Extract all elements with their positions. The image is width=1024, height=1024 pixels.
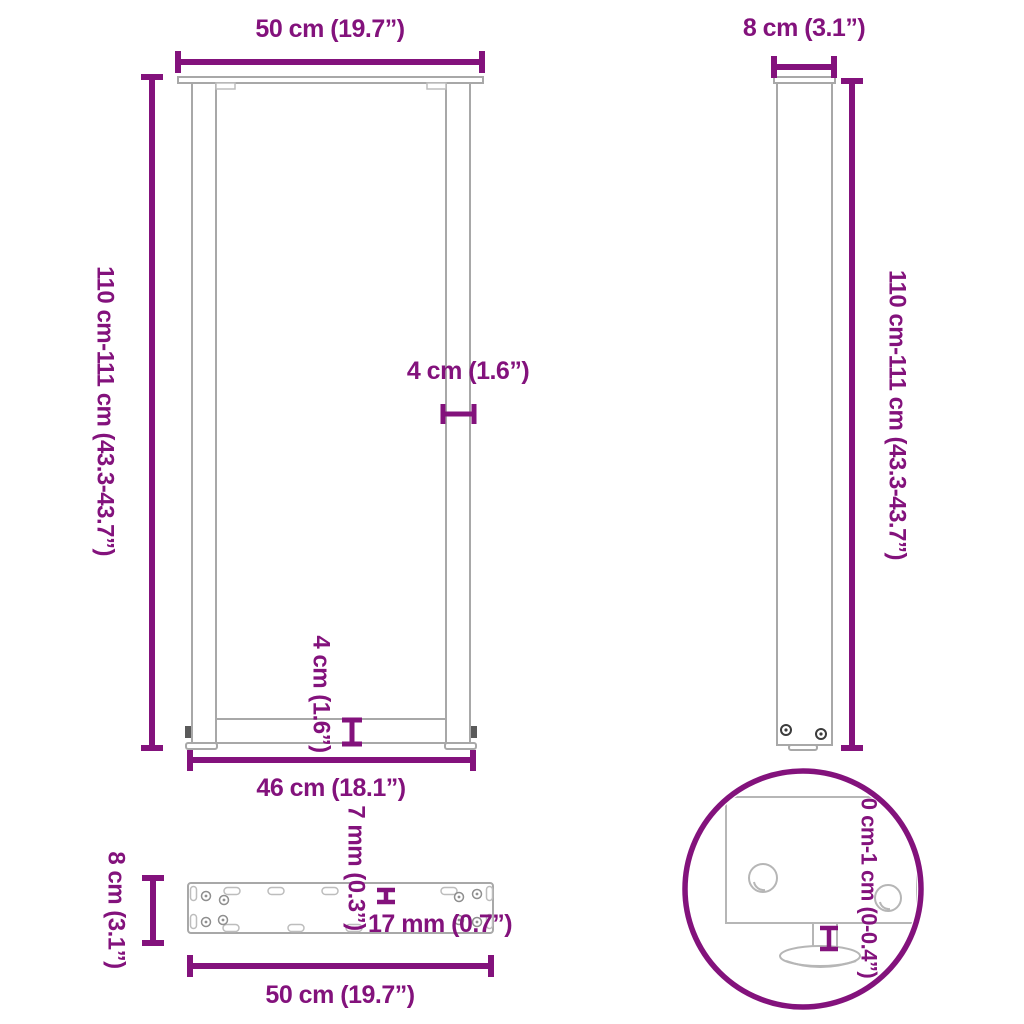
front-bar-width-label: 4 cm (1.6”) [407, 357, 530, 385]
screw-dot-icon [784, 728, 787, 731]
front-width-dimension-line [175, 51, 485, 73]
slot-icon [268, 888, 284, 895]
side-foot [789, 745, 817, 750]
screw-hole-icon [749, 864, 777, 892]
plate-thickness-label: 7 mm (0.3”) [343, 805, 370, 930]
slot-icon [441, 888, 457, 895]
front-height-dimension-line [141, 76, 163, 749]
front-left-bracket [216, 83, 235, 89]
front-left-bar [192, 83, 216, 743]
detail-view: 0 cm-1 cm (0-0.4”) [685, 771, 921, 1007]
plate-depth-label: 8 cm (3.1”) [103, 851, 130, 968]
front-width-label: 50 cm (19.7”) [255, 15, 404, 43]
plate-view: 8 cm (3.1”) 50 cm (19.7”) 7 mm (0.3”) 17… [103, 805, 513, 1009]
hole-spacing-label: 17 mm (0.7”) [368, 910, 512, 938]
slot-icon [223, 925, 239, 932]
slot-icon [322, 888, 338, 895]
front-right-bracket [427, 83, 446, 89]
front-height-label: 110 cm-111 cm (43.3-43.7”) [92, 266, 119, 556]
side-width-dimension-line [772, 56, 836, 78]
plate-width-dimension-line [189, 955, 492, 977]
slot-icon [191, 887, 197, 901]
plate-depth-dimension-line [142, 877, 164, 944]
detail-contents [726, 797, 917, 967]
front-left-adjuster-icon [185, 726, 191, 738]
front-right-adjuster-icon [471, 726, 477, 738]
side-height-label: 110 cm-111 cm (43.3-43.7”) [884, 270, 911, 560]
slot-icon [487, 887, 493, 901]
front-bottom-width-dimension-line [189, 750, 474, 771]
front-crossbar-label: 4 cm (1.6”) [308, 635, 335, 752]
front-bottom-width-label: 46 cm (18.1”) [256, 774, 405, 802]
screw-dot-icon [819, 732, 822, 735]
slot-icon [224, 888, 240, 895]
front-left-foot [186, 743, 217, 749]
front-view: 50 cm (19.7”) 110 cm-111 cm (43.3-43.7”)… [92, 15, 530, 802]
diagram-svg: 50 cm (19.7”) 110 cm-111 cm (43.3-43.7”)… [0, 0, 1024, 1024]
front-top-plate [178, 77, 483, 83]
slot-icon [288, 925, 304, 932]
side-height-dimension-line [841, 80, 863, 749]
front-right-foot [445, 743, 476, 749]
plate-width-label: 50 cm (19.7”) [265, 981, 414, 1009]
side-column [777, 83, 832, 745]
side-width-label: 8 cm (3.1”) [743, 14, 866, 42]
slot-icon [191, 915, 197, 929]
side-view: 8 cm (3.1”) 110 cm-111 cm (43.3-43.7”) [743, 14, 911, 750]
foot-adjustment-label: 0 cm-1 cm (0-0.4”) [857, 798, 882, 979]
dimension-diagram: 50 cm (19.7”) 110 cm-111 cm (43.3-43.7”)… [0, 0, 1024, 1024]
